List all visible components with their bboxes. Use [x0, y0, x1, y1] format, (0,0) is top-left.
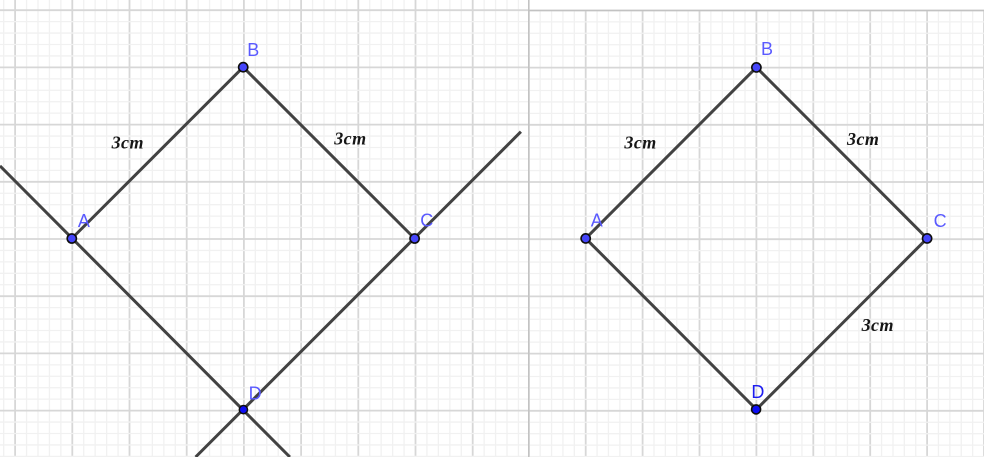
svg-text:D: D [751, 382, 764, 402]
svg-text:C: C [420, 211, 433, 231]
svg-text:B: B [761, 39, 773, 59]
svg-text:C: C [934, 211, 947, 231]
svg-text:A: A [78, 211, 90, 231]
svg-text:D: D [249, 384, 262, 404]
svg-text:3cm: 3cm [111, 132, 144, 152]
svg-text:B: B [247, 40, 259, 60]
svg-text:3cm: 3cm [333, 129, 366, 149]
svg-text:3cm: 3cm [623, 133, 656, 153]
svg-text:3cm: 3cm [846, 129, 879, 149]
svg-text:A: A [591, 211, 603, 231]
svg-text:3cm: 3cm [861, 315, 894, 335]
